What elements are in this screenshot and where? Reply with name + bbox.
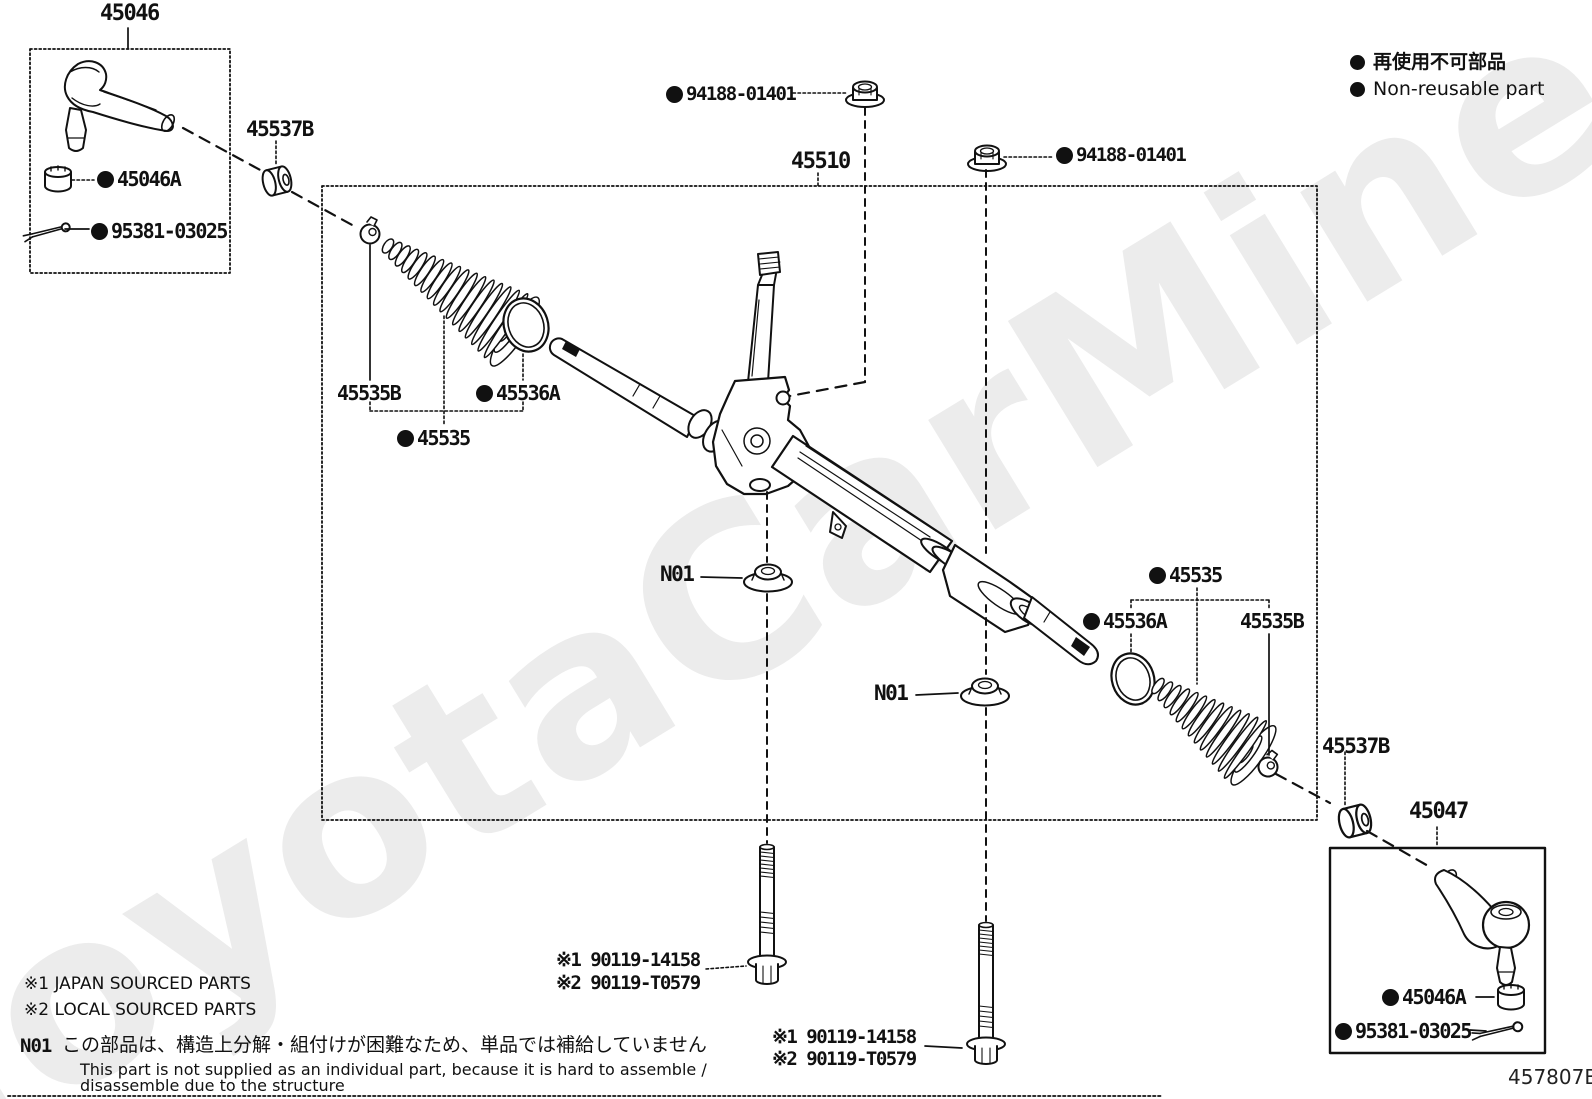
legend-non-reusable-jp: 再使用不可部品 — [1350, 53, 1506, 72]
bushing-45537b-top-drawing — [260, 165, 293, 197]
boot-clamp-left-drawing — [361, 217, 380, 244]
callout-45535b-right: 45535B — [1240, 611, 1303, 631]
non-reusable-dot-icon — [1350, 82, 1365, 97]
castle-nut-left-drawing — [45, 166, 71, 192]
callout-bolt-left-2: ※2 90119-T0579 — [556, 974, 700, 993]
flange-nut-left-drawing — [846, 82, 884, 108]
callout-bolt-right-1: ※1 90119-14158 — [772, 1028, 916, 1047]
non-reusable-dot-icon — [91, 223, 108, 240]
bolt-left-drawing — [748, 845, 786, 985]
callout-bolt-left-1: ※1 90119-14158 — [556, 951, 700, 970]
grommet-right-drawing — [961, 679, 1009, 706]
callout-n01-right: N01 — [874, 683, 907, 704]
grommet-left-drawing — [744, 565, 792, 592]
non-reusable-dot-icon — [1382, 989, 1399, 1006]
diagram-code: 457807B — [1508, 1066, 1592, 1089]
callout-45536a-left: 45536A — [476, 383, 559, 403]
footnote-japan-sourced: ※1 JAPAN SOURCED PARTS — [24, 975, 251, 995]
callout-45535-left: 45535 — [397, 428, 470, 448]
callout-94188-left: 94188-01401 — [666, 85, 795, 104]
callout-n01-left: N01 — [660, 564, 693, 585]
callout-95381-right: 95381-03025 — [1335, 1021, 1471, 1041]
tie-rod-end-left-drawing — [65, 61, 177, 151]
callout-45046a-left: 45046A — [97, 169, 180, 189]
non-reusable-dot-icon — [1149, 567, 1166, 584]
callout-45510: 45510 — [791, 151, 850, 173]
footnote-n01-code: N01 — [20, 1036, 51, 1058]
flange-nut-right-drawing — [968, 146, 1006, 172]
non-reusable-dot-icon — [97, 171, 114, 188]
footnote-n01-jp: この部品は、構造上分解・組付けが困難なため、単品では補給していません — [62, 1035, 707, 1057]
callout-45047: 45047 — [1409, 801, 1468, 823]
callout-45537b-right: 45537B — [1322, 736, 1389, 757]
bushing-45537b-right-drawing — [1336, 803, 1373, 839]
footnote-local-sourced: ※2 LOCAL SOURCED PARTS — [24, 1001, 256, 1021]
inner-tie-rod-left-drawing — [550, 338, 734, 456]
o-ring-right-drawing — [1105, 648, 1161, 710]
callout-45046: 45046 — [100, 3, 159, 25]
non-reusable-dot-icon — [1056, 147, 1073, 164]
bolt-right-drawing — [967, 923, 1005, 1065]
non-reusable-dot-icon — [1335, 1023, 1352, 1040]
callout-45537b-top: 45537B — [246, 119, 313, 140]
non-reusable-dot-icon — [1350, 55, 1365, 70]
callout-94188-right: 94188-01401 — [1056, 146, 1185, 165]
callout-45536a-right: 45536A — [1083, 611, 1166, 631]
non-reusable-dot-icon — [397, 430, 414, 447]
non-reusable-dot-icon — [1083, 613, 1100, 630]
legend-non-reusable-en: Non-reusable part — [1350, 80, 1544, 99]
footnote-n01-en-2: disassemble due to the structure — [80, 1077, 345, 1095]
callout-45535b-left: 45535B — [337, 383, 400, 403]
castle-nut-right-drawing — [1498, 984, 1524, 1010]
dotted-leader-lines — [72, 93, 1437, 969]
callout-bolt-right-2: ※2 90119-T0579 — [772, 1050, 916, 1069]
callout-45535-right: 45535 — [1149, 565, 1222, 585]
tie-rod-end-right-drawing — [1435, 867, 1529, 985]
parts-diagram-page: ToyotaCarMine.ru — [0, 0, 1592, 1099]
callout-95381-left: 95381-03025 — [91, 221, 227, 241]
non-reusable-dot-icon — [476, 385, 493, 402]
callout-45046a-right: 45046A — [1382, 987, 1465, 1007]
non-reusable-dot-icon — [666, 86, 683, 103]
